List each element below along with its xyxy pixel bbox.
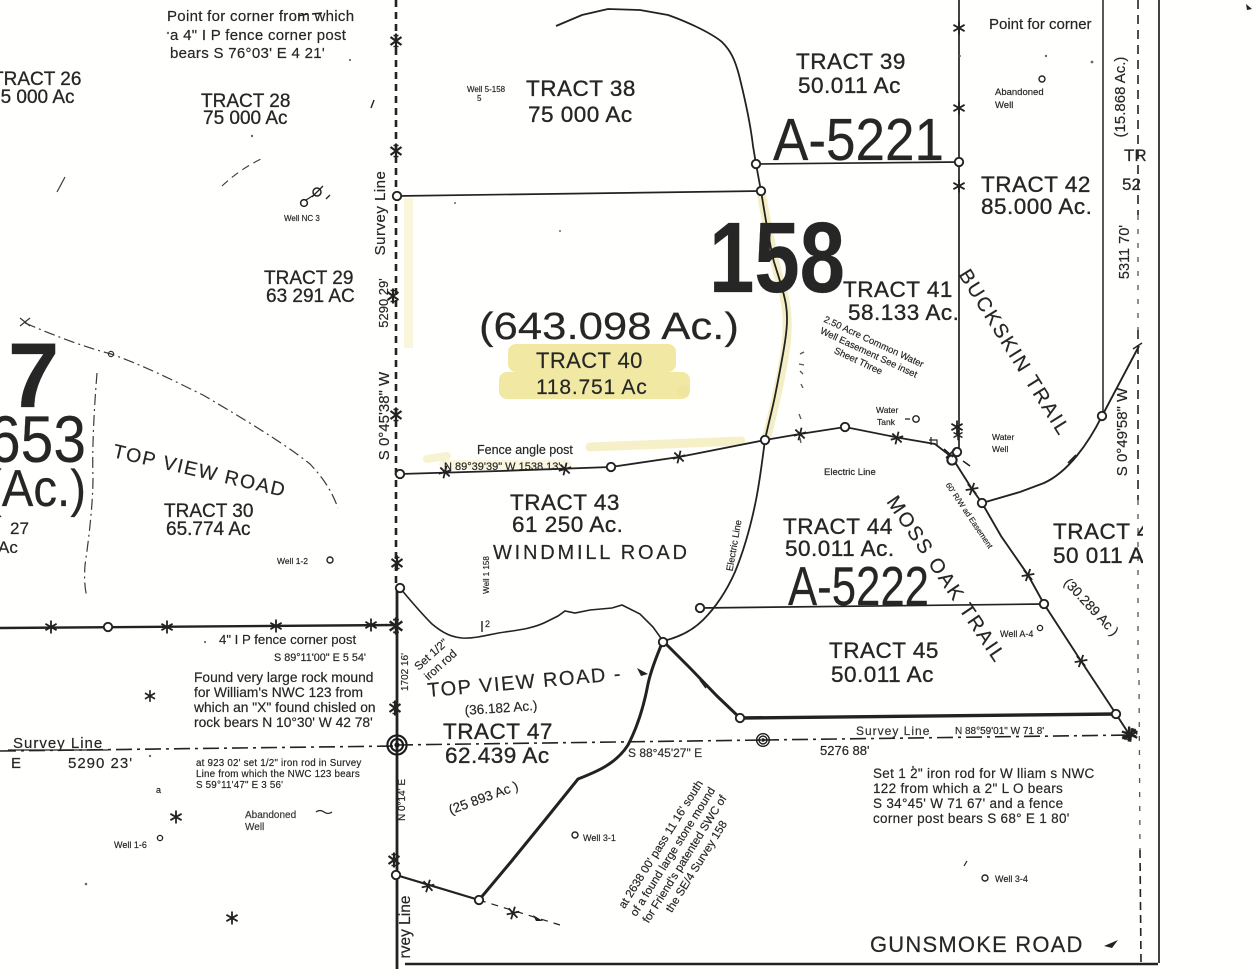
svg-text:65.774 Ac: 65.774 Ac — [166, 519, 251, 540]
svg-text:(15.868 Ac.): (15.868 Ac.) — [1112, 57, 1129, 138]
svg-text:TRACT 41: TRACT 41 — [843, 277, 953, 302]
svg-text:2: 2 — [485, 619, 490, 629]
svg-text:Well NC 3: Well NC 3 — [284, 214, 320, 223]
svg-text:TRACT 40: TRACT 40 — [536, 348, 643, 373]
svg-text:63 291 AC: 63 291 AC — [266, 286, 355, 307]
svg-text:for William's NWC 123 from: for William's NWC 123 from — [194, 685, 363, 700]
svg-text:52: 52 — [1122, 175, 1141, 194]
svg-text:rock bears N 10°30' W 42 78': rock bears N 10°30' W 42 78' — [194, 715, 373, 730]
svg-text:E: E — [11, 755, 21, 772]
svg-text:(Ac.): (Ac.) — [0, 460, 86, 518]
svg-text:N 88°59'01" W 71 8': N 88°59'01" W 71 8' — [955, 726, 1044, 737]
svg-text:TR: TR — [1124, 146, 1147, 165]
svg-text:Fence angle post: Fence angle post — [477, 443, 573, 457]
svg-text:Well 3-1: Well 3-1 — [583, 833, 616, 843]
svg-text:Found very large rock mound: Found very large rock mound — [194, 670, 373, 685]
svg-text:5276 88': 5276 88' — [820, 743, 869, 758]
svg-text:(643.098 Ac.): (643.098 Ac.) — [479, 306, 739, 348]
svg-text:S 88°45'27" E: S 88°45'27" E — [628, 746, 702, 760]
svg-text:4" I P fence corner post: 4" I P fence corner post — [219, 632, 356, 647]
svg-text:122 from which a 2" L O bears: 122 from which a 2" L O bears — [873, 781, 1063, 796]
svg-text:5311 70': 5311 70' — [1117, 225, 1133, 279]
svg-text:Point for corner: Point for corner — [989, 16, 1092, 33]
svg-text:a: a — [156, 785, 161, 795]
svg-text:N 0°14' E: N 0°14' E — [397, 779, 408, 821]
svg-text:75 000 Ac: 75 000 Ac — [0, 87, 75, 108]
svg-text:a 4" I P fence corner post: a 4" I P fence corner post — [170, 27, 347, 44]
svg-text:A-5221: A-5221 — [773, 107, 944, 173]
svg-text:58.133 Ac.: 58.133 Ac. — [848, 300, 959, 325]
svg-text:Well 1-6: Well 1-6 — [114, 840, 147, 850]
svg-text:Well 5-158: Well 5-158 — [467, 85, 506, 94]
svg-text:Set 1 2" iron rod for W lliam: Set 1 2" iron rod for W lliam s NWC — [873, 766, 1095, 781]
svg-text:GUNSMOKE ROAD: GUNSMOKE ROAD — [870, 932, 1084, 957]
svg-text:at 923 02' set 1/2" iron rod i: at 923 02' set 1/2" iron rod in Survey — [196, 758, 361, 769]
svg-text:S 89°11'00" E 5 54': S 89°11'00" E 5 54' — [274, 652, 366, 664]
svg-text:158: 158 — [709, 202, 845, 314]
svg-text:5: 5 — [477, 94, 482, 103]
svg-text:5290 23': 5290 23' — [68, 755, 133, 772]
svg-text:S 59°11'47" E 3 56': S 59°11'47" E 3 56' — [196, 780, 283, 791]
svg-text:Well: Well — [992, 444, 1008, 454]
svg-text:50 011 Ac: 50 011 Ac — [1053, 543, 1156, 568]
svg-text:Abandoned: Abandoned — [245, 810, 296, 821]
svg-text:Survey Line: Survey Line — [13, 735, 103, 752]
svg-text:Ac: Ac — [0, 538, 18, 557]
svg-text:Well: Well — [995, 100, 1013, 111]
svg-text:corner post bears S 68° E 1 8: corner post bears S 68° E 1 80' — [873, 811, 1070, 826]
svg-text:WINDMILL ROAD: WINDMILL ROAD — [493, 542, 690, 564]
svg-text:Point for corner from which: Point for corner from which — [167, 8, 354, 25]
svg-text:Survey Line: Survey Line — [856, 724, 930, 738]
svg-text:Survey Line: Survey Line — [372, 171, 389, 256]
svg-text:TRACT 45: TRACT 45 — [829, 638, 939, 663]
svg-text:75 000 Ac: 75 000 Ac — [203, 108, 288, 129]
svg-text:27: 27 — [10, 519, 29, 538]
svg-text:75 000 Ac: 75 000 Ac — [528, 102, 633, 127]
svg-text:1702 16': 1702 16' — [400, 653, 411, 691]
svg-text:61 250 Ac.: 61 250 Ac. — [512, 512, 623, 537]
svg-text:TRACT 39: TRACT 39 — [796, 49, 906, 74]
svg-text:rvey Line: rvey Line — [397, 896, 414, 959]
svg-text:A-5222: A-5222 — [788, 555, 929, 617]
svg-text:50.011 Ac: 50.011 Ac — [831, 662, 934, 687]
svg-text:N 89°39'39" W 1538 13': N 89°39'39" W 1538 13' — [444, 461, 560, 473]
svg-text:Electric Line: Electric Line — [824, 467, 876, 478]
svg-text:Well 1 158: Well 1 158 — [482, 556, 491, 594]
svg-text:Water: Water — [992, 432, 1015, 442]
svg-text:62.439 Ac: 62.439 Ac — [445, 743, 550, 768]
svg-text:85.000 Ac.: 85.000 Ac. — [981, 194, 1092, 219]
svg-text:S 0°45'38" W: S 0°45'38" W — [376, 371, 393, 460]
svg-text:Abandoned: Abandoned — [995, 87, 1044, 98]
svg-text:Tank: Tank — [877, 417, 896, 427]
svg-text:Well: Well — [245, 822, 264, 833]
svg-text:50.011 Ac: 50.011 Ac — [798, 73, 901, 98]
svg-text:TRACT 38: TRACT 38 — [526, 76, 636, 101]
svg-text:bears S 76°03' E 4 21': bears S 76°03' E 4 21' — [170, 45, 325, 62]
svg-text:which an "X" found chisled on: which an "X" found chisled on — [193, 700, 376, 715]
svg-text:S 0°49'58" W: S 0°49'58" W — [1114, 387, 1131, 476]
svg-text:Line from which the NWC 123 be: Line from which the NWC 123 bears — [196, 769, 360, 780]
svg-text:118.751 Ac: 118.751 Ac — [536, 376, 648, 399]
svg-text:Well 3-4: Well 3-4 — [995, 874, 1028, 884]
svg-text:Well 1-2: Well 1-2 — [277, 556, 308, 566]
svg-text:5290 29': 5290 29' — [376, 278, 391, 327]
svg-text:TRACT 47: TRACT 47 — [443, 719, 553, 744]
svg-text:Well A-4: Well A-4 — [1000, 629, 1033, 639]
svg-text:Water: Water — [876, 405, 899, 415]
svg-text:S 34°45' W 71 67' and a fence: S 34°45' W 71 67' and a fence — [873, 796, 1063, 811]
